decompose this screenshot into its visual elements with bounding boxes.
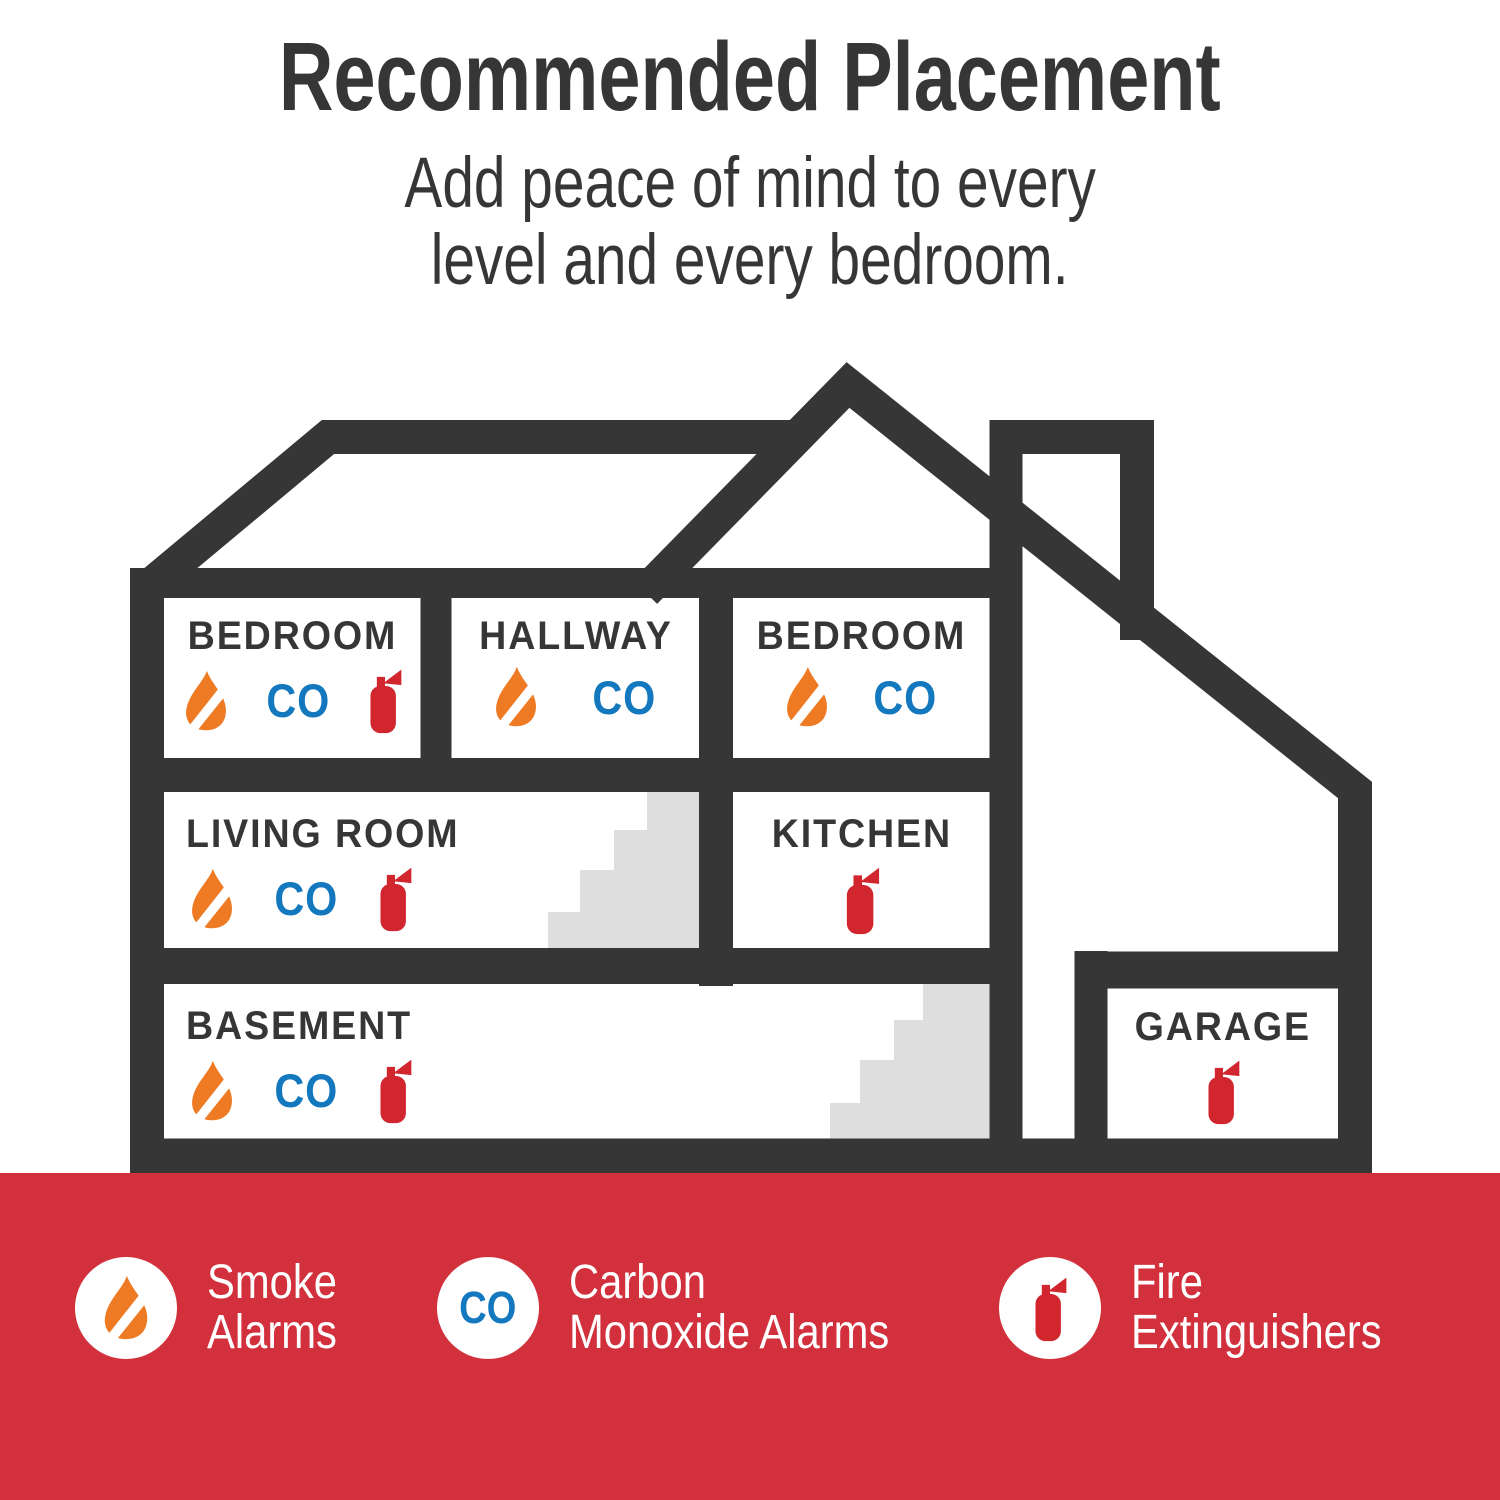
co-alarm-icon: CO (274, 1063, 338, 1118)
room-label: BEDROOM (188, 616, 398, 656)
room-label: GARAGE (1135, 1007, 1311, 1047)
legend-footer: Smoke Alarms CO Carbon Monoxide Alarms F… (0, 1173, 1500, 1500)
room-bedroom-1: BEDROOM CO (164, 598, 421, 776)
device-row: CO (490, 666, 661, 728)
carbon-monoxide-icon: CO (459, 1282, 516, 1334)
room-garage: GARAGE (1108, 989, 1338, 1158)
device-row: CO (186, 864, 415, 933)
legend-label: Fire Extinguishers (1131, 1258, 1382, 1358)
fire-extinguisher-icon (365, 666, 405, 735)
room-basement: BASEMENT CO (164, 986, 826, 1160)
fire-extinguisher-icon (1030, 1274, 1070, 1343)
legend-label: Smoke Alarms (207, 1258, 337, 1358)
legend-circle (75, 1257, 177, 1359)
infographic: Recommended Placement Add peace of mind … (0, 0, 1500, 1500)
smoke-alarm-icon (186, 868, 238, 930)
room-label: BEDROOM (757, 616, 967, 656)
co-alarm-icon: CO (593, 670, 657, 725)
room-label: KITCHEN (771, 814, 951, 854)
room-bedroom-2: BEDROOM CO (733, 598, 990, 776)
legend-item-carbon-monoxide-alarms: CO Carbon Monoxide Alarms (437, 1257, 937, 1359)
fire-extinguisher-icon (1203, 1057, 1243, 1126)
co-alarm-icon: CO (267, 673, 331, 728)
co-alarm-icon: CO (874, 670, 938, 725)
room-hallway: HALLWAY CO (452, 598, 699, 776)
device-row: CO (781, 666, 942, 728)
legend-circle (999, 1257, 1101, 1359)
legend-label-line-2: Alarms (207, 1306, 337, 1359)
legend-circle: CO (437, 1257, 539, 1359)
legend-label-line-2: Extinguishers (1131, 1306, 1382, 1359)
legend-item-fire-extinguishers: Fire Extinguishers (999, 1257, 1419, 1359)
fire-extinguisher-icon (375, 1056, 415, 1125)
smoke-alarm-icon (180, 670, 232, 732)
smoke-alarm-icon (781, 666, 833, 728)
room-label: LIVING ROOM (186, 814, 459, 854)
legend-label-line-1: Carbon (569, 1256, 706, 1309)
smoke-alarm-icon (186, 1060, 238, 1122)
legend-label-line-1: Smoke (207, 1256, 337, 1309)
device-row (1203, 1057, 1243, 1126)
legend-label: Carbon Monoxide Alarms (569, 1258, 889, 1358)
fire-extinguisher-icon (841, 864, 883, 936)
smoke-alarm-icon (98, 1275, 154, 1341)
room-kitchen: KITCHEN (733, 792, 990, 972)
smoke-alarm-icon (490, 666, 542, 728)
device-row (841, 864, 883, 936)
room-label: BASEMENT (186, 1006, 412, 1046)
legend-item-smoke-alarms: Smoke Alarms (75, 1257, 356, 1359)
fire-extinguisher-icon (375, 864, 415, 933)
room-label: HALLWAY (479, 616, 673, 656)
room-living-room: LIVING ROOM CO (164, 792, 566, 972)
legend-label-line-1: Fire (1131, 1256, 1203, 1309)
staircase-basement (830, 982, 990, 1141)
device-row: CO (186, 1056, 415, 1125)
co-alarm-icon: CO (274, 871, 338, 926)
staircase-living-room (548, 792, 699, 950)
legend-label-line-2: Monoxide Alarms (569, 1306, 889, 1359)
device-row: CO (180, 666, 405, 735)
